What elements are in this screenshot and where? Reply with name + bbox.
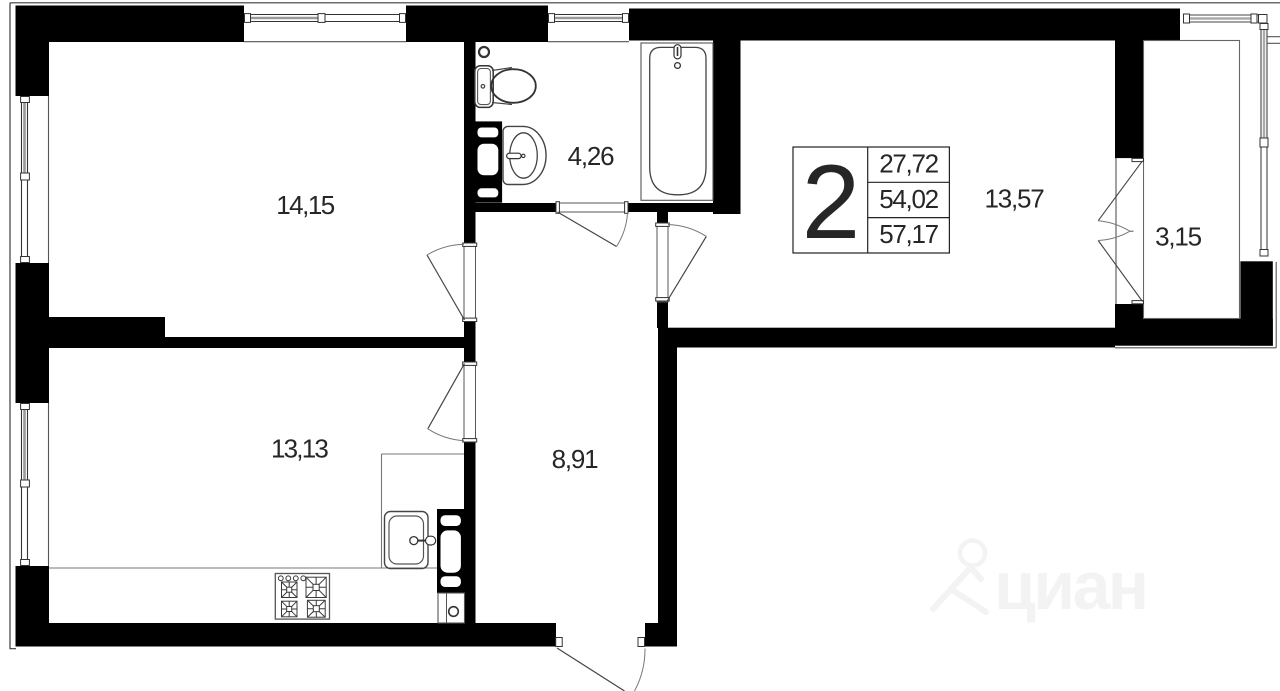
- svg-text:13,13: 13,13: [271, 434, 328, 464]
- svg-text:13,57: 13,57: [984, 184, 1044, 214]
- svg-text:циан: циан: [994, 548, 1147, 624]
- svg-text:57,17: 57,17: [879, 219, 938, 249]
- svg-text:54,02: 54,02: [879, 184, 938, 214]
- svg-text:4,26: 4,26: [568, 141, 615, 171]
- svg-text:27,72: 27,72: [879, 149, 938, 179]
- svg-text:14,15: 14,15: [276, 190, 335, 220]
- svg-text:2: 2: [802, 144, 858, 261]
- svg-text:3,15: 3,15: [1155, 222, 1202, 252]
- svg-text:8,91: 8,91: [552, 444, 599, 474]
